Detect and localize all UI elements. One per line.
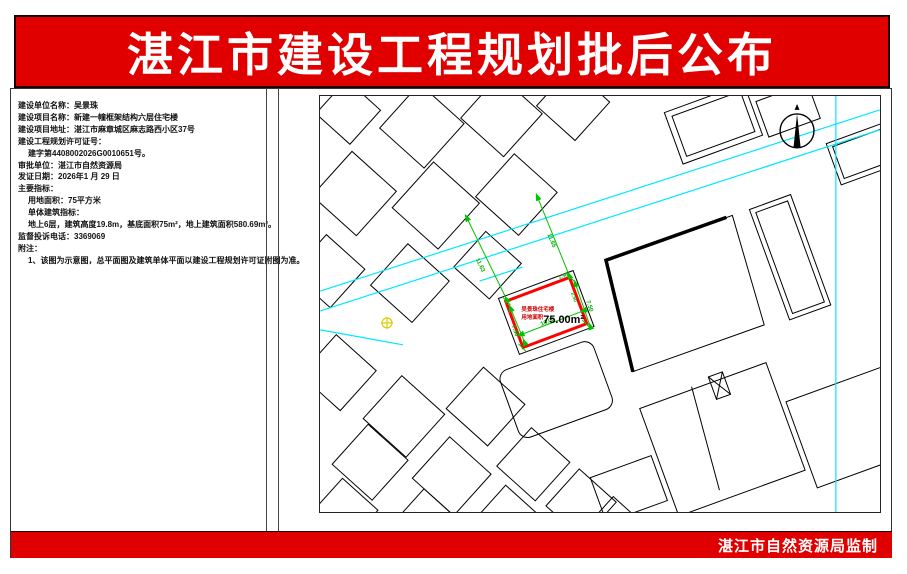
- road-lines: [320, 96, 879, 512]
- page-title: 湛江市建设工程规划批后公布: [127, 19, 777, 85]
- info-line: 发证日期：2026年1 月 29 日: [18, 171, 270, 183]
- info-line: 建设项目名称：新建一幢框架结构六层住宅楼: [18, 112, 270, 124]
- info-line: 建设工程规划许可证号：: [18, 136, 270, 148]
- info-line: 建设项目地址：湛江市麻章城区麻志路西小区37号: [18, 124, 270, 136]
- info-line: 主要指标：: [18, 183, 270, 195]
- panel-border-line: [266, 88, 267, 531]
- bottom-right-parcels: [497, 339, 880, 512]
- announcement-page: 湛江市建设工程规划批后公布 建设单位名称：吴景珠建设项目名称：新建一幢框架结构六…: [0, 0, 907, 574]
- info-panel: 建设单位名称：吴景珠建设项目名称：新建一幢框架结构六层住宅楼建设项目地址：湛江市…: [18, 100, 270, 267]
- svg-text:75.00m²: 75.00m²: [543, 314, 584, 326]
- diamond-parcel-grid: [320, 96, 647, 512]
- utility-marker-icon: [381, 317, 393, 329]
- info-line: 审批单位：湛江市自然资源局: [18, 160, 270, 172]
- info-line: 建字第4408002026G0010651号。: [18, 148, 270, 160]
- plot-label: 吴景珠住宅楼 用地面积 75.00m²: [521, 305, 584, 326]
- north-compass-icon: [780, 104, 814, 148]
- svg-text:11.63: 11.63: [474, 257, 486, 273]
- banner: 湛江市建设工程规划批后公布: [14, 15, 890, 88]
- svg-text:用地面积: 用地面积: [521, 313, 543, 321]
- panel-divider-line: [278, 88, 279, 531]
- large-parcel-thick-boundary: [606, 195, 831, 372]
- svg-text:吴景珠住宅楼: 吴景珠住宅楼: [521, 305, 554, 313]
- info-line: 建设单位名称：吴景珠: [18, 100, 270, 112]
- footer-label: 湛江市自然资源局监制: [718, 535, 892, 556]
- info-line: 监督投诉电话：3369069: [18, 231, 270, 243]
- info-line: 单体建筑指标：: [18, 207, 270, 219]
- info-line: 地上6层，建筑高度19.8m，基底面积75m²，地上建筑面积580.69m²。: [18, 219, 270, 231]
- info-line: 1、该图为示意图，总平面图及建筑单体平面以建设工程规划许可证附图为准。: [18, 255, 270, 267]
- site-plan-map: 11.63 11.65 10.00 7.50 7.50 2.50 1.50 吴景…: [319, 95, 881, 513]
- info-line: 用地面积：75平方米: [18, 195, 270, 207]
- footer-bar: 湛江市自然资源局监制: [11, 531, 892, 558]
- svg-text:7.50: 7.50: [584, 300, 594, 314]
- info-line: 附注：: [18, 243, 270, 255]
